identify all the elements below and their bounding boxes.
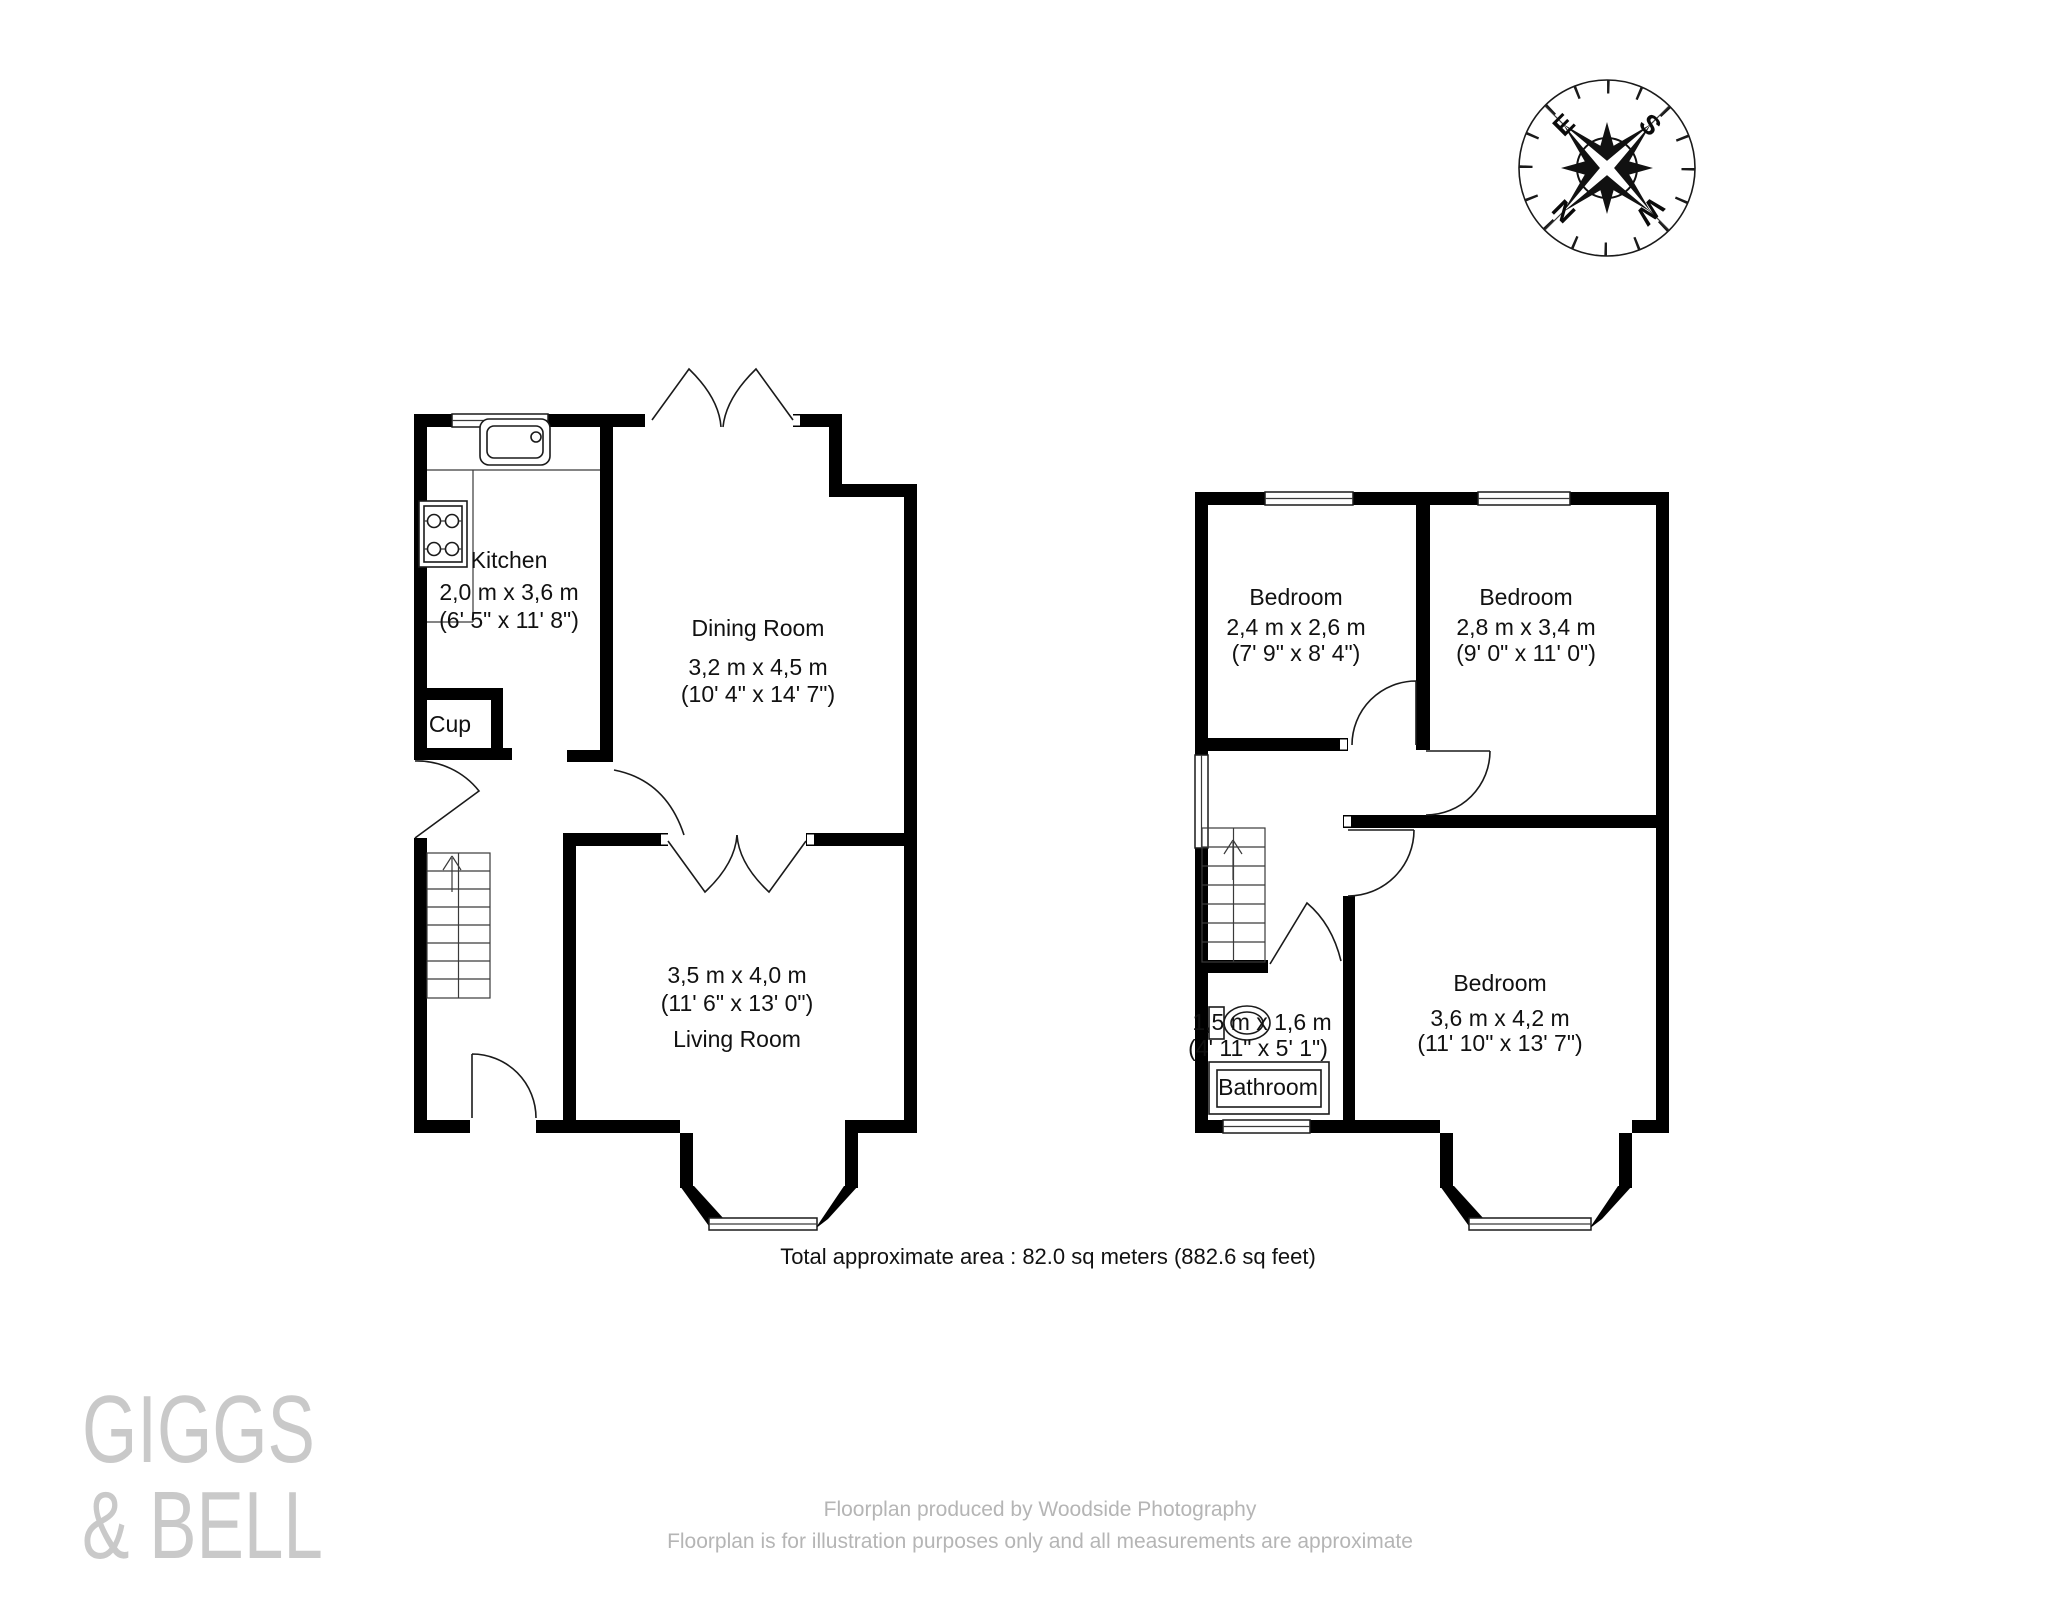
bedroom-front-right-size-imperial: (9' 0" x 11' 0") — [1456, 640, 1596, 666]
hall-dining-door-arc — [614, 770, 684, 835]
bedroom-front-right-window — [1478, 492, 1570, 505]
living-room-size-metric: 3,5 m x 4,0 m — [667, 962, 806, 988]
bedroom-rear-bay-window — [1469, 1218, 1591, 1230]
bathroom-size-metric: 1,5 m x 1,6 m — [1192, 1009, 1331, 1035]
bedroom-front-left-label: Bedroom — [1249, 584, 1342, 610]
kitchen-size-metric: 2,0 m x 3,6 m — [439, 579, 578, 605]
stairs-up-icon — [427, 853, 490, 998]
bedroom-front-left-size-metric: 2,4 m x 2,6 m — [1226, 614, 1365, 640]
cupboard-label: Cup — [429, 711, 471, 737]
bedroom-rear-size-imperial: (11' 10" x 13' 7") — [1417, 1030, 1582, 1056]
floorplan-page: N E S W — [0, 0, 2048, 1613]
dining-room-label: Dining Room — [692, 615, 825, 641]
bedroom-front-right-door-arc — [1426, 751, 1490, 815]
bedroom-front-right-size-metric: 2,8 m x 3,4 m — [1456, 614, 1595, 640]
hob-icon — [419, 501, 467, 567]
dining-living-double-doors — [668, 835, 806, 892]
bedroom-front-left-window — [1265, 492, 1353, 505]
bedroom-rear-door-arc — [1348, 830, 1414, 896]
bathroom-label: Bathroom — [1218, 1074, 1318, 1100]
bathroom-size-imperial: (4' 11" x 5' 1") — [1188, 1035, 1328, 1061]
living-room-size-imperial: (11' 6" x 13' 0") — [661, 990, 814, 1016]
bathroom-door-arc — [1270, 903, 1341, 964]
dining-french-doors — [652, 369, 793, 427]
kitchen-label: Kitchen — [471, 547, 548, 573]
floorplan-canvas: N E S W — [0, 0, 2048, 1613]
bedroom-rear-label: Bedroom — [1453, 970, 1546, 996]
front-door-arc — [415, 761, 479, 838]
living-room-label: Living Room — [673, 1026, 801, 1052]
stairs-up-icon — [1202, 828, 1265, 962]
dining-room-size-metric: 3,2 m x 4,5 m — [688, 654, 827, 680]
footer-disclaimer-line: Floorplan is for illustration purposes o… — [32, 1526, 2048, 1558]
bedroom-front-right-label: Bedroom — [1479, 584, 1572, 610]
bathroom-window — [1223, 1120, 1310, 1133]
total-area-label: Total approximate area : 82.0 sq meters … — [780, 1244, 1316, 1269]
footer-credit-line: Floorplan produced by Woodside Photograp… — [32, 1494, 2048, 1526]
bedroom-rear-size-metric: 3,6 m x 4,2 m — [1430, 1005, 1569, 1031]
kitchen-size-imperial: (6' 5" x 11' 8") — [439, 607, 579, 633]
hall-back-door-arc — [472, 1054, 536, 1118]
ground-floor-walls — [414, 414, 917, 1229]
living-room-bay-window — [709, 1218, 817, 1230]
first-floor-plan: Bedroom 2,4 m x 2,6 m (7' 9" x 8' 4") Be… — [1188, 492, 1669, 1230]
footer-disclaimer: Floorplan produced by Woodside Photograp… — [0, 1494, 2048, 1558]
bedroom-front-left-size-imperial: (7' 9" x 8' 4") — [1232, 640, 1361, 666]
ground-floor-plan: Kitchen 2,0 m x 3,6 m (6' 5" x 11' 8") C… — [414, 369, 917, 1230]
bedroom-front-left-door-arc — [1352, 681, 1416, 745]
agency-watermark-line1: GIGGS — [82, 1382, 323, 1478]
compass-rose: N E S W — [1519, 80, 1695, 256]
kitchen-sink-icon — [480, 419, 550, 465]
dining-room-size-imperial: (10' 4" x 14' 7") — [681, 681, 835, 707]
